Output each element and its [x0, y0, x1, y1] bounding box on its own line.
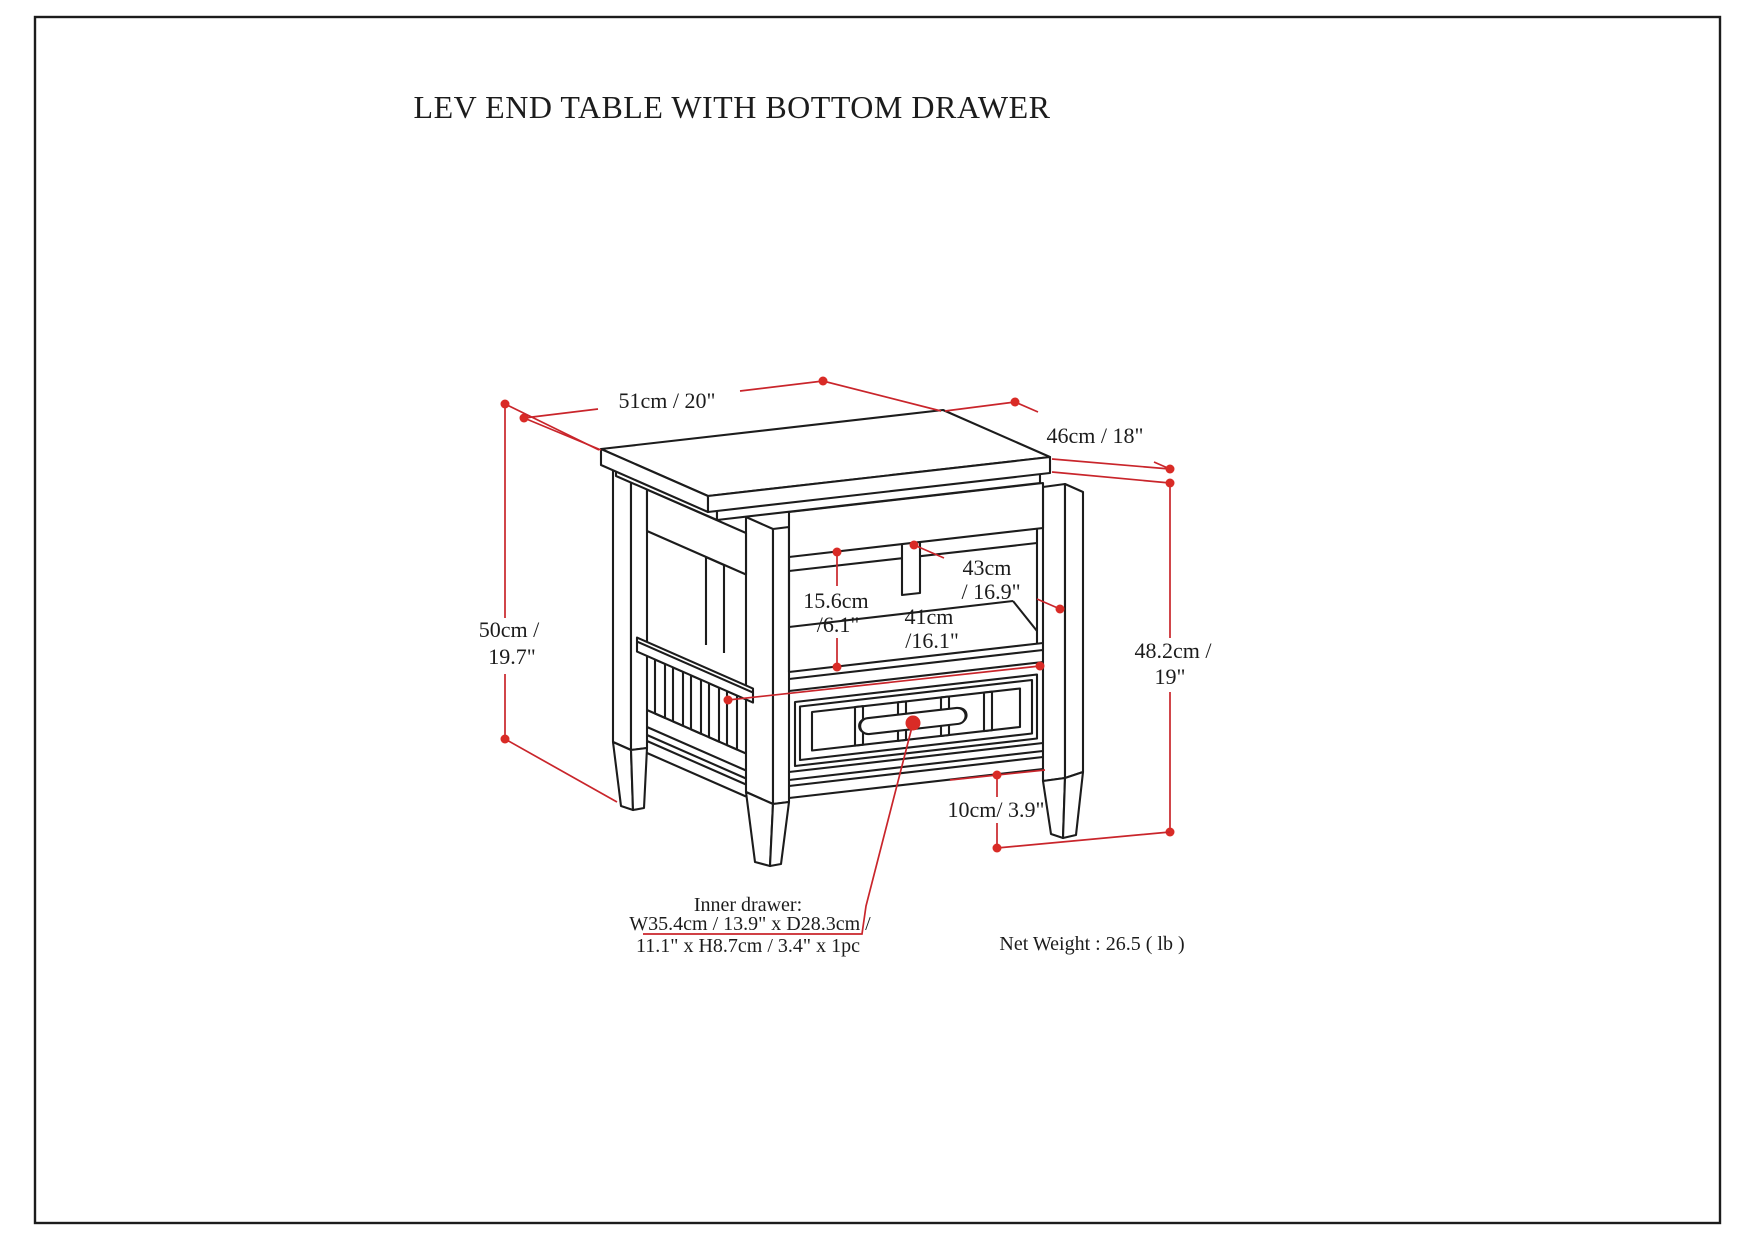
page-title: LEV END TABLE WITH BOTTOM DRAWER: [414, 89, 1051, 125]
inner-drawer-note-2: W35.4cm / 13.9" x D28.3cm /: [629, 913, 871, 935]
opening-height-label-2: /6.1": [817, 612, 860, 637]
page-border: [35, 17, 1720, 1223]
slat: [709, 683, 719, 741]
opening-depth-label-2: / 16.9": [961, 579, 1020, 604]
overall-height-label-2: 19.7": [488, 644, 535, 669]
slat: [655, 660, 665, 718]
spec-sheet-page: LEV END TABLE WITH BOTTOM DRAWER: [0, 0, 1755, 1241]
slat: [691, 675, 701, 733]
back-post: [902, 542, 920, 596]
table-drawing: LEV END TABLE WITH BOTTOM DRAWER: [0, 0, 1755, 1241]
opening-width-label-1: 41cm: [905, 604, 954, 629]
opening-height-label-1: 15.6cm: [803, 588, 868, 613]
leg-height-label: 10cm/ 3.9": [948, 797, 1045, 822]
drawer-divider: [984, 692, 992, 731]
top-depth-label: 46cm / 18": [1047, 423, 1144, 448]
dimension-overall-height: 50cm / 19.7": [479, 400, 617, 803]
opening-depth-label-1: 43cm: [963, 555, 1012, 580]
handle-marker-dot: [906, 716, 921, 731]
opening-width-label-2: /16.1": [905, 628, 959, 653]
top-width-label: 51cm / 20": [619, 388, 716, 413]
body-height-label-1: 48.2cm /: [1135, 638, 1213, 663]
left-side-panel: [647, 490, 746, 797]
body-height-label-2: 19": [1155, 664, 1186, 689]
right-leg: [1043, 484, 1083, 838]
overall-height-label-1: 50cm /: [479, 617, 540, 642]
dimension-opening-depth: 43cm / 16.9": [910, 541, 1065, 614]
inner-drawer-note-3: 11.1" x H8.7cm / 3.4" x 1pc: [636, 935, 860, 957]
slat: [673, 667, 683, 725]
net-weight-label: Net Weight : 26.5 ( lb ): [999, 933, 1184, 955]
